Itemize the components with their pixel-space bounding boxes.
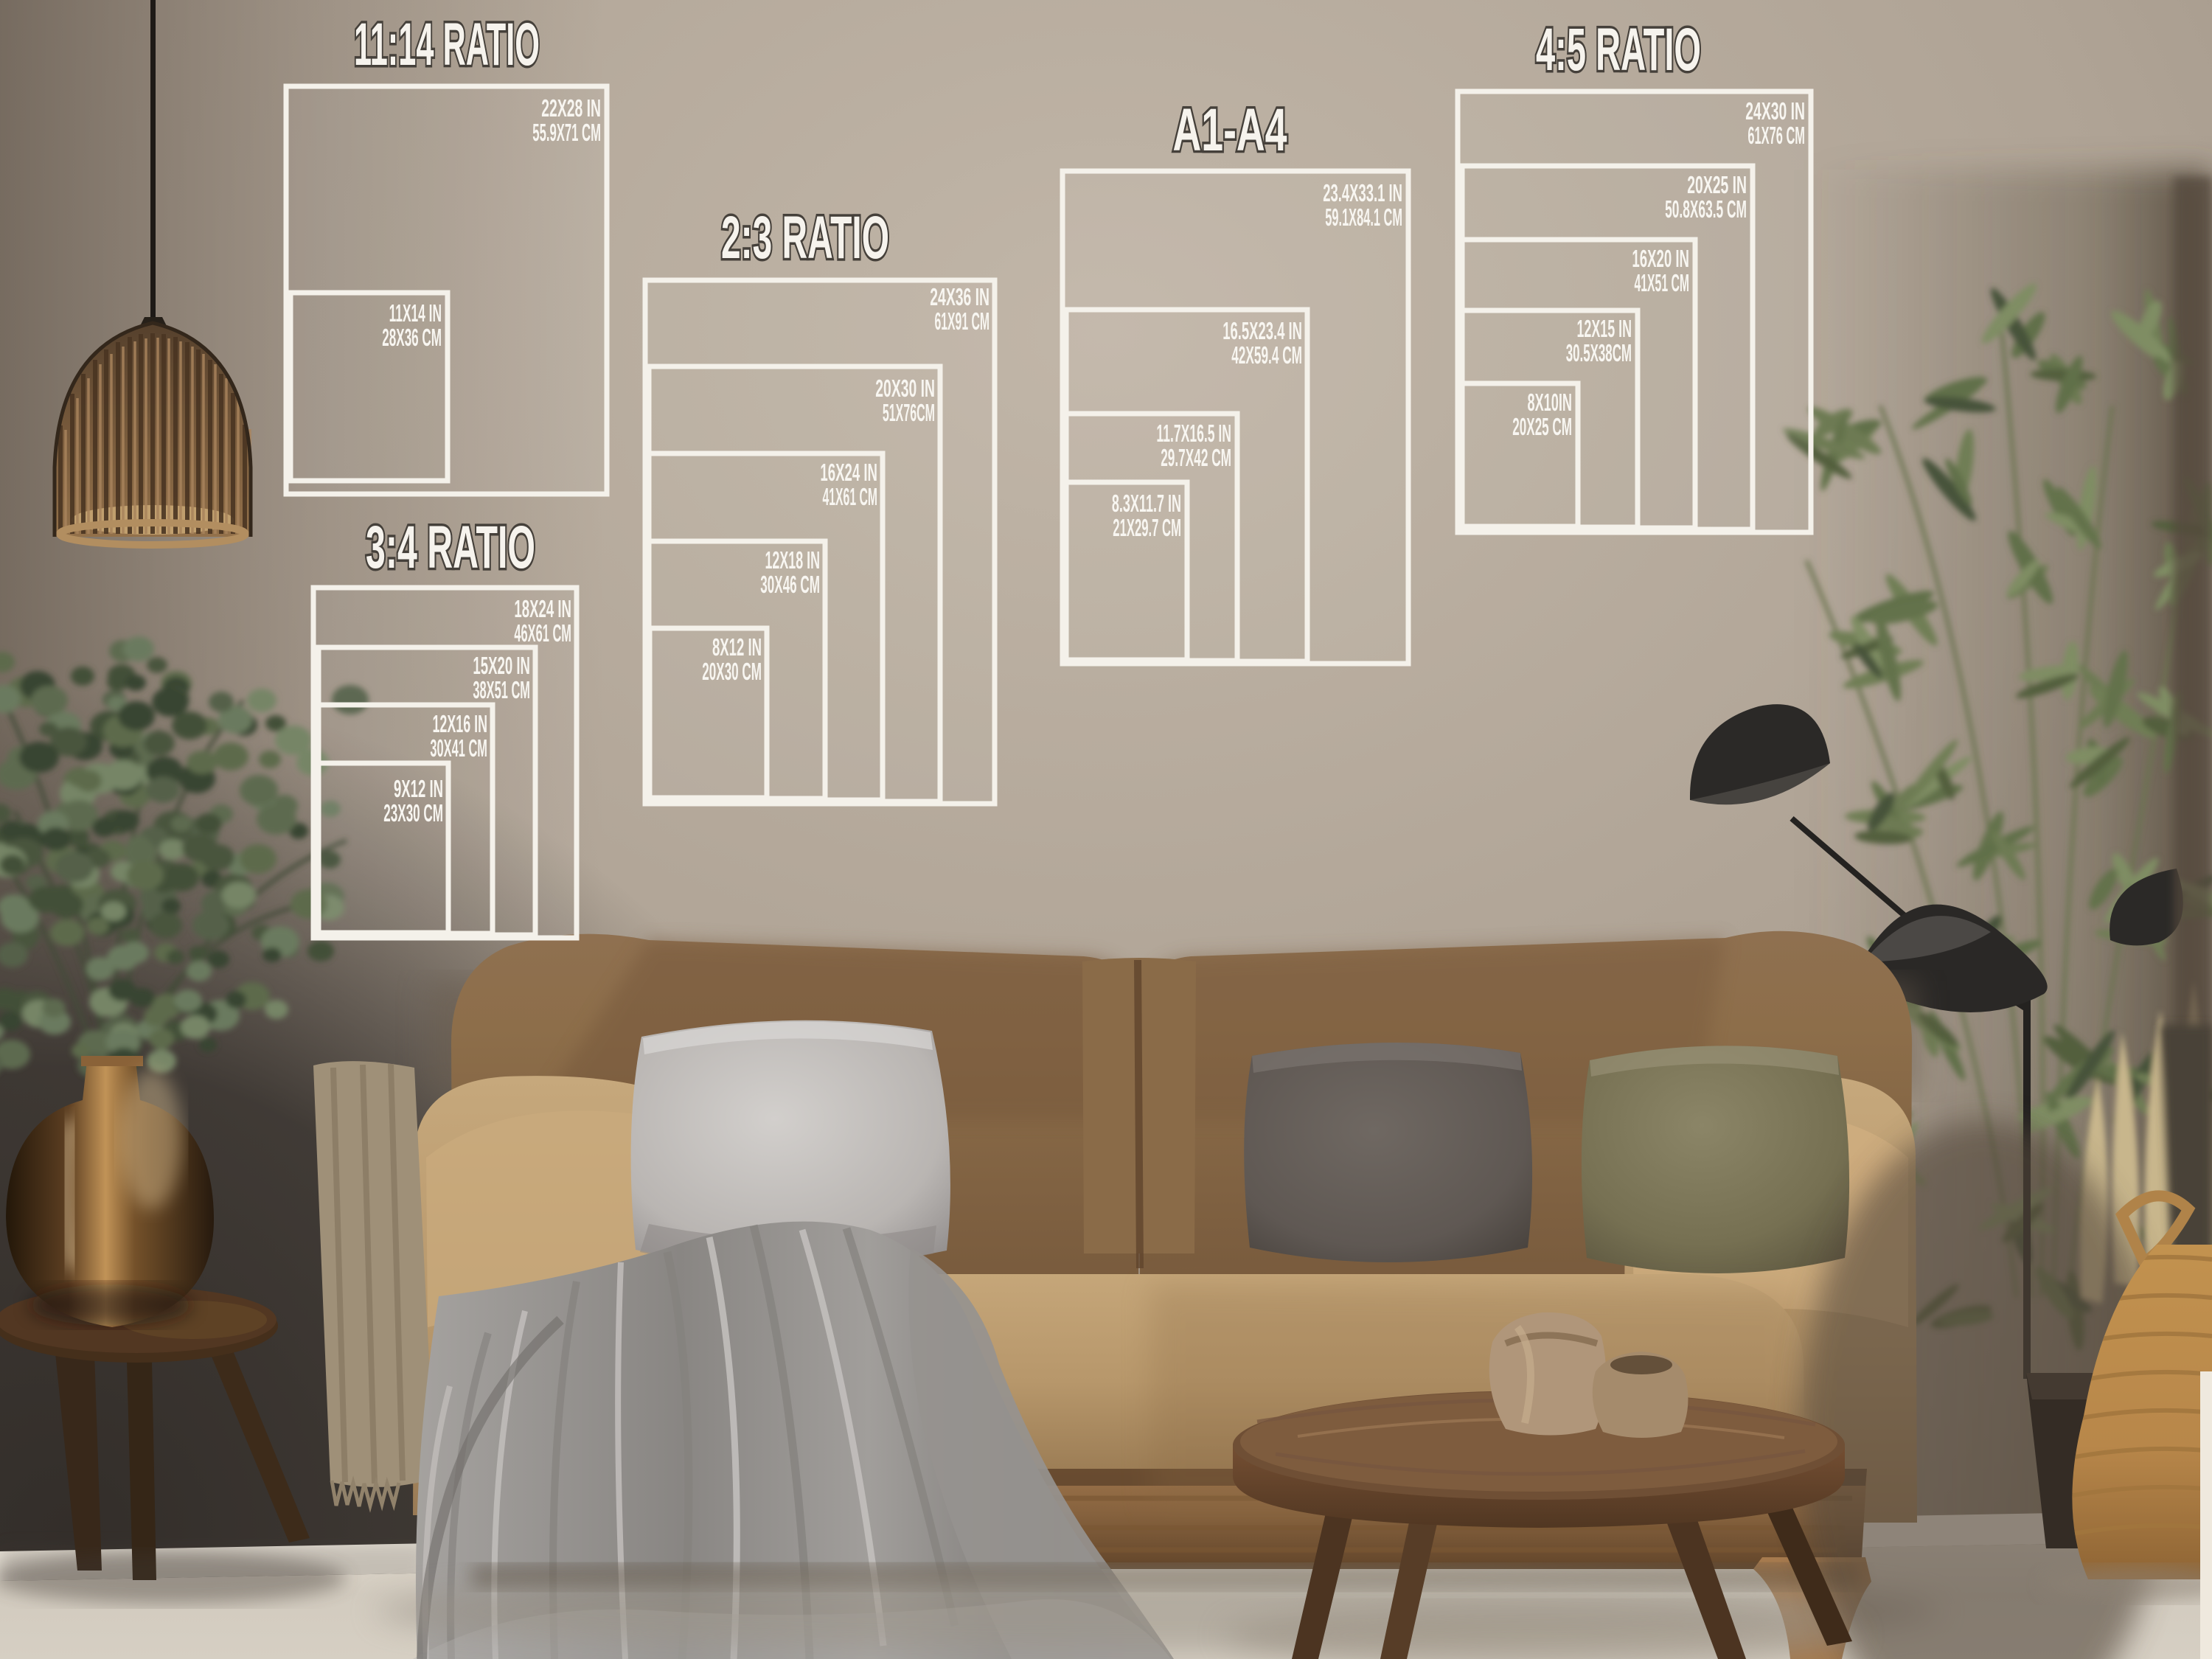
- svg-text:59.1X84.1 CM: 59.1X84.1 CM: [1325, 204, 1402, 231]
- svg-text:3:4 RATIO: 3:4 RATIO: [366, 514, 535, 581]
- svg-text:55.9X71 CM: 55.9X71 CM: [532, 119, 601, 146]
- svg-text:24X36 IN: 24X36 IN: [930, 283, 990, 310]
- svg-text:A1-A4: A1-A4: [1173, 97, 1287, 164]
- svg-text:8.3X11.7 IN: 8.3X11.7 IN: [1112, 490, 1181, 517]
- svg-text:20X25 CM: 20X25 CM: [1512, 413, 1572, 440]
- svg-text:16.5X23.4 IN: 16.5X23.4 IN: [1222, 317, 1302, 344]
- svg-text:18X24 IN: 18X24 IN: [514, 595, 571, 622]
- svg-text:12X16 IN: 12X16 IN: [433, 710, 488, 737]
- svg-text:61X76 CM: 61X76 CM: [1747, 122, 1805, 149]
- svg-text:16X24 IN: 16X24 IN: [820, 459, 877, 486]
- svg-text:16X20 IN: 16X20 IN: [1632, 245, 1689, 272]
- svg-text:30X41 CM: 30X41 CM: [430, 734, 487, 762]
- svg-text:41X61 CM: 41X61 CM: [823, 483, 878, 510]
- svg-text:15X20 IN: 15X20 IN: [473, 652, 530, 679]
- svg-text:24X30 IN: 24X30 IN: [1745, 97, 1805, 125]
- svg-text:42X59.4 CM: 42X59.4 CM: [1231, 341, 1302, 369]
- svg-text:23X30 CM: 23X30 CM: [383, 799, 443, 827]
- svg-text:20X30 IN: 20X30 IN: [875, 375, 935, 402]
- svg-text:9X12 IN: 9X12 IN: [394, 775, 443, 802]
- svg-text:22X28 IN: 22X28 IN: [541, 94, 601, 122]
- svg-text:51X76CM: 51X76CM: [883, 399, 935, 426]
- svg-text:28X36 CM: 28X36 CM: [382, 324, 442, 351]
- svg-text:61X91 CM: 61X91 CM: [935, 307, 990, 335]
- svg-text:46X61 CM: 46X61 CM: [514, 619, 571, 647]
- svg-text:20X30 CM: 20X30 CM: [702, 658, 762, 685]
- svg-text:38X51 CM: 38X51 CM: [473, 676, 530, 703]
- svg-text:12X15 IN: 12X15 IN: [1577, 315, 1632, 342]
- svg-text:21X29.7 CM: 21X29.7 CM: [1113, 514, 1181, 541]
- svg-text:11.7X16.5 IN: 11.7X16.5 IN: [1156, 420, 1231, 447]
- svg-text:11:14 RATIO: 11:14 RATIO: [354, 11, 540, 78]
- svg-text:20X25 IN: 20X25 IN: [1687, 171, 1747, 198]
- svg-text:41X51 CM: 41X51 CM: [1635, 269, 1690, 296]
- svg-text:50.8X63.5 CM: 50.8X63.5 CM: [1665, 195, 1747, 223]
- svg-text:8X12 IN: 8X12 IN: [712, 633, 762, 661]
- svg-text:23.4X33.1 IN: 23.4X33.1 IN: [1323, 179, 1402, 206]
- svg-text:12X18 IN: 12X18 IN: [765, 546, 821, 574]
- svg-text:30X46 CM: 30X46 CM: [760, 571, 820, 598]
- svg-text:30.5X38CM: 30.5X38CM: [1566, 339, 1632, 366]
- svg-text:11X14 IN: 11X14 IN: [389, 299, 442, 327]
- svg-text:4:5 RATIO: 4:5 RATIO: [1536, 16, 1701, 83]
- svg-text:29.7X42 CM: 29.7X42 CM: [1161, 444, 1231, 471]
- svg-text:2:3 RATIO: 2:3 RATIO: [721, 204, 889, 271]
- svg-text:8X10IN: 8X10IN: [1528, 389, 1573, 416]
